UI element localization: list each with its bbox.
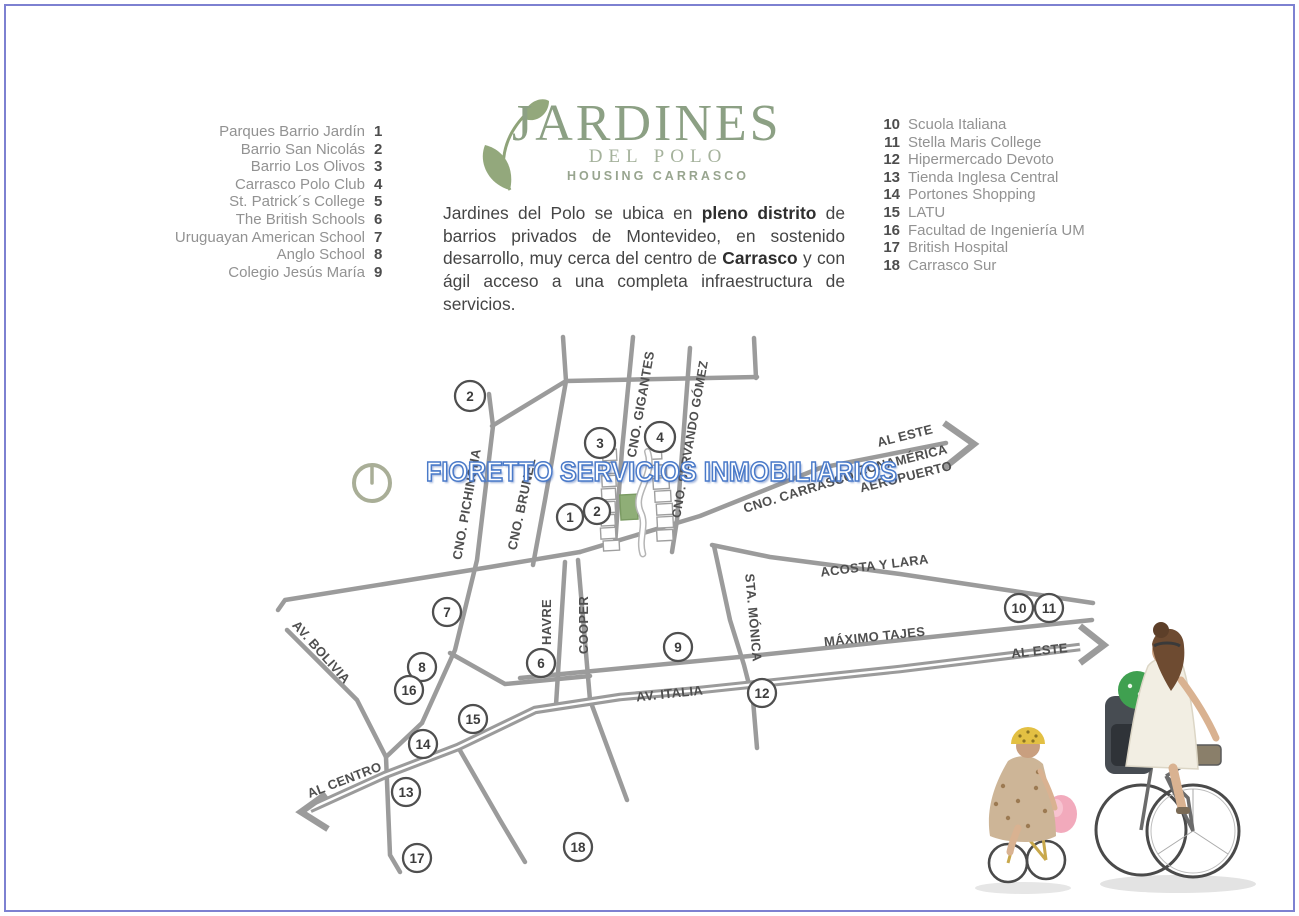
svg-text:15: 15 [465,712,481,727]
mother-bicycle [1096,622,1239,877]
street-label: MÁXIMO TAJES [823,624,926,650]
child-bicycle [989,727,1077,882]
svg-text:17: 17 [409,851,424,866]
svg-text:13: 13 [398,785,414,800]
svg-text:6: 6 [537,656,545,671]
svg-text:12: 12 [754,686,769,701]
svg-text:4: 4 [656,430,664,445]
flyer-page: JARDINES DEL POLO HOUSING CARRASCO Jardi… [0,0,1299,916]
poi-marker-9: 9 [664,633,692,661]
street-label: HAVRE [539,599,554,645]
poi-marker-1: 1 [557,504,583,530]
road-west-connector [278,552,580,610]
road-av-bolivia [287,630,386,757]
poi-marker-7: 7 [433,598,461,626]
poi-marker-3: 3 [585,428,615,458]
road-top-stub [563,337,566,381]
poi-marker-2: 2 [455,381,485,411]
street-label: COOPER [576,596,591,654]
project-lot [620,494,638,520]
poi-marker-13: 13 [392,778,420,806]
street-label: AV. BOLIVIA [289,618,353,687]
road-top-horizontal [566,377,757,381]
poi-marker-15: 15 [459,705,487,733]
poi-marker-17: 17 [403,844,431,872]
svg-text:8: 8 [418,660,426,675]
svg-text:16: 16 [401,683,417,698]
svg-text:2: 2 [466,389,474,404]
road-top-diagonal [492,381,566,426]
svg-text:7: 7 [443,605,451,620]
road-havre [556,562,565,705]
poi-marker-2: 2 [584,498,610,524]
poi-marker-14: 14 [409,730,437,758]
clock-icon [354,465,390,501]
svg-text:1: 1 [566,510,574,525]
svg-text:3: 3 [596,436,604,451]
poi-marker-18: 18 [564,833,592,861]
poi-marker-4: 4 [645,422,675,452]
cyclists-photo [948,596,1270,908]
poi-marker-16: 16 [395,676,423,704]
road-junction-southeast [458,747,525,862]
street-label: AV. ITALIA [635,683,704,705]
poi-marker-6: 6 [527,649,555,677]
agency-watermark: FIORETTO SERVICIOS INMOBILIARIOS [426,456,897,488]
svg-text:14: 14 [415,737,431,752]
road-top-right-stub [754,338,756,378]
svg-text:2: 2 [593,504,601,519]
street-label: STA. MÓNICA [742,573,765,663]
svg-text:9: 9 [674,640,682,655]
svg-text:18: 18 [570,840,586,855]
poi-marker-12: 12 [748,679,776,707]
